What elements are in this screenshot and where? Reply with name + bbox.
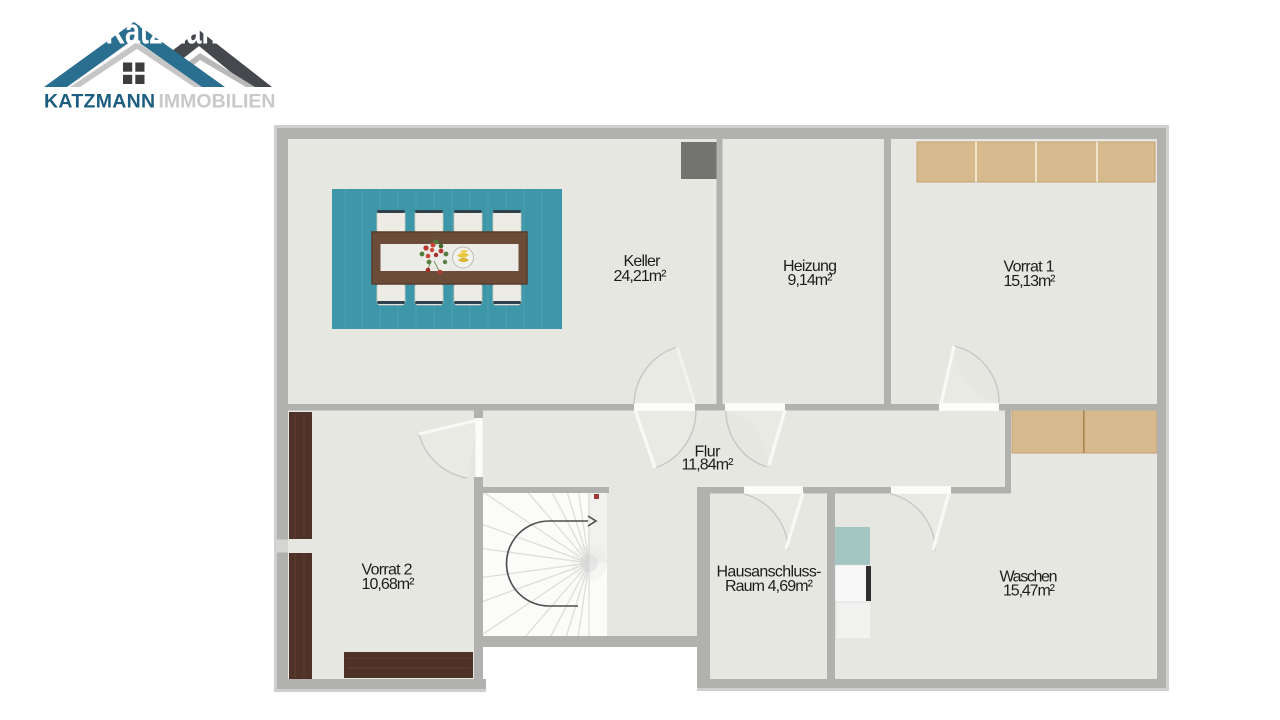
svg-text:24,21m²: 24,21m² (614, 268, 668, 285)
svg-text:IMMOBILIEN: IMMOBILIEN (159, 91, 276, 113)
svg-text:10,68m²: 10,68m² (362, 576, 416, 593)
svg-text:15,13m²: 15,13m² (1004, 273, 1057, 290)
svg-text:Raum 4,69m²: Raum 4,69m² (725, 578, 814, 595)
svg-text:15,47m²: 15,47m² (1003, 583, 1056, 600)
svg-text:9,14m²: 9,14m² (788, 272, 834, 289)
svg-text:11,84m²: 11,84m² (682, 457, 735, 474)
svg-text:v.Katzmann-Im: v.Katzmann-Im (85, 11, 275, 52)
svg-text:KATZMANN: KATZMANN (44, 91, 155, 113)
